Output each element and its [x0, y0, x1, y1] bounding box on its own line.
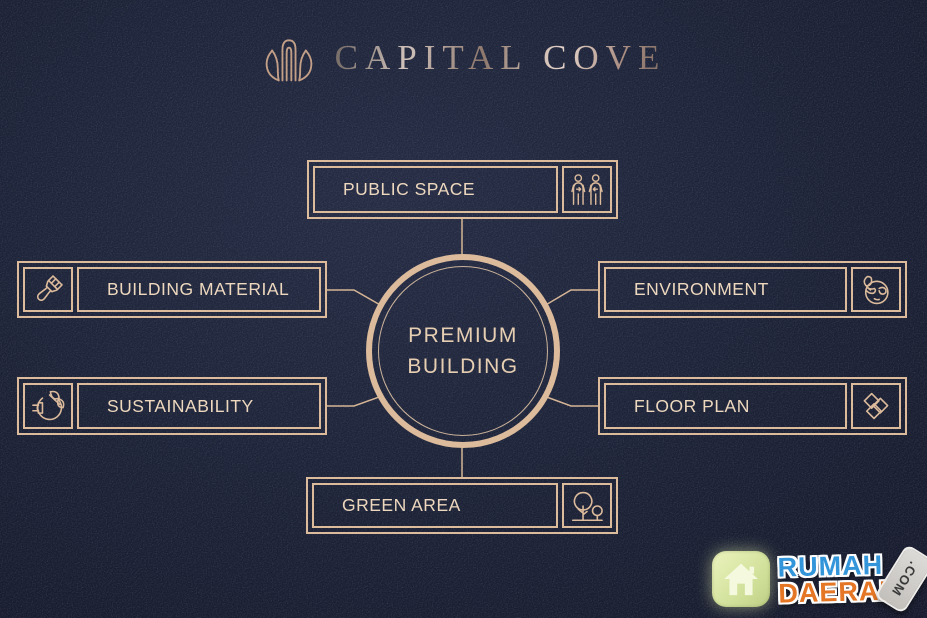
node-sustainability: SUSTAINABILITY	[17, 377, 327, 435]
node-environment: ENVIRONMENT	[598, 261, 907, 318]
globe-leaf-icon	[851, 267, 901, 312]
brand-logo: CAPITAL COVE	[0, 28, 927, 88]
tulip-building-icon	[261, 28, 317, 88]
node-label: PUBLIC SPACE	[343, 179, 475, 200]
node-label-box: PUBLIC SPACE	[313, 166, 558, 213]
paintbrush-icon	[23, 267, 73, 312]
central-node-premium-building: PREMIUM BUILDING	[366, 254, 560, 448]
node-label-box: ENVIRONMENT	[604, 267, 847, 312]
rumahdaerah-watermark: RUMAH DAERAH .COM	[712, 544, 924, 614]
brand-title: CAPITAL COVE	[335, 38, 667, 78]
node-label: GREEN AREA	[342, 495, 461, 516]
node-public-space: PUBLIC SPACE	[307, 160, 618, 219]
house-icon	[712, 551, 770, 607]
floor-plan-icon	[851, 383, 901, 429]
node-label: BUILDING MATERIAL	[107, 279, 289, 300]
node-label-box: BUILDING MATERIAL	[77, 267, 321, 312]
node-label-box: GREEN AREA	[312, 483, 558, 528]
node-label-box: FLOOR PLAN	[604, 383, 847, 429]
node-label: ENVIRONMENT	[634, 279, 769, 300]
trees-icon	[562, 483, 612, 528]
eco-plug-icon	[23, 383, 73, 429]
hub-title-line1: PREMIUM	[408, 320, 518, 351]
node-floor-plan: FLOOR PLAN	[598, 377, 907, 435]
people-distance-icon	[562, 166, 612, 213]
node-label-box: SUSTAINABILITY	[77, 383, 321, 429]
node-building-material: BUILDING MATERIAL	[17, 261, 327, 318]
slide-canvas: CAPITAL COVE PREMIUM BUILDING PUBLIC SPA…	[0, 0, 927, 618]
node-label: FLOOR PLAN	[634, 396, 750, 417]
node-green-area: GREEN AREA	[306, 477, 618, 534]
hub-title-line2: BUILDING	[407, 351, 518, 382]
watermark-tld: .COM	[889, 559, 922, 599]
node-label: SUSTAINABILITY	[107, 396, 254, 417]
